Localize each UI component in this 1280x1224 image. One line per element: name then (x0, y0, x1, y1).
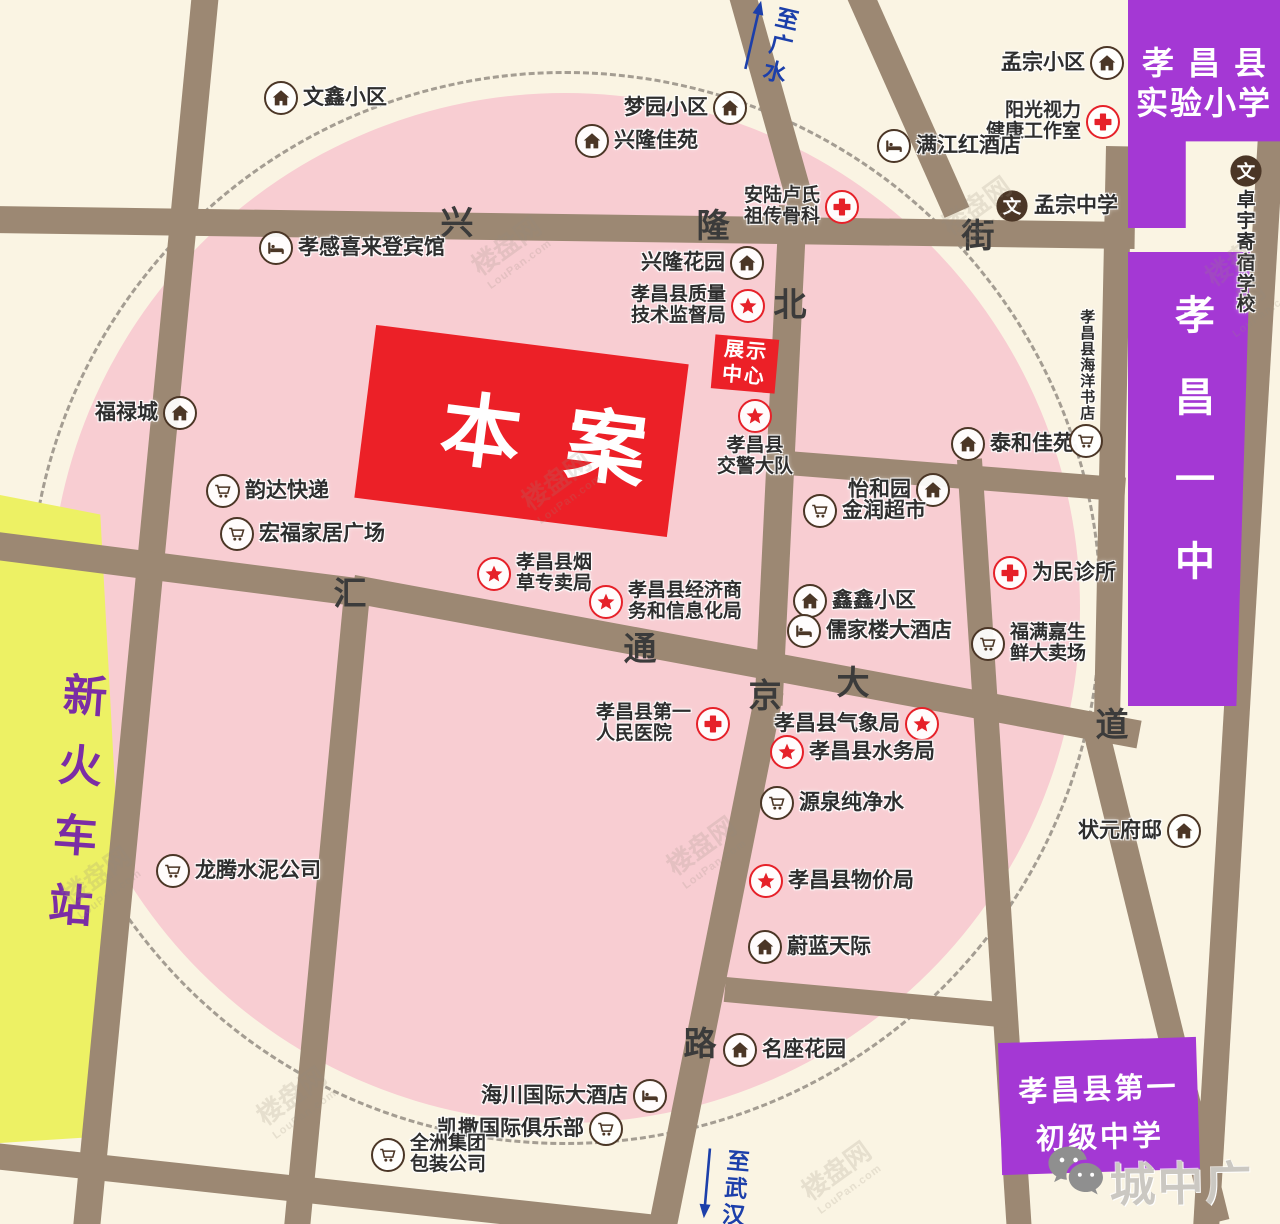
poi-label: 孝昌县水务局 (809, 740, 935, 763)
poi-zhuoyu-boarding-school: 文卓宇 寄宿学校 (1229, 154, 1263, 316)
direction-label: 至武汉 (714, 1147, 755, 1224)
poi-label: 安陆卢氏 祖传骨科 (744, 186, 820, 228)
cart-icon (156, 854, 190, 888)
poi-label: 福禄城 (95, 401, 158, 424)
road-label-beijing-road: 北 (774, 278, 807, 326)
cart-icon (589, 1112, 623, 1146)
poi-label: 龙腾水泥公司 (195, 859, 321, 882)
poi-taihe-jiayuan: 泰和佳苑 (951, 427, 1074, 461)
house-icon (951, 427, 985, 461)
poi-label: 鑫鑫小区 (832, 589, 916, 612)
poi-water-affairs-bureau: 孝昌县水务局 (770, 735, 935, 769)
poi-label: 孝昌县质量 技术监督局 (631, 285, 726, 327)
poi-jinrun-supermarket: 金润超市 (803, 494, 926, 528)
poi-label: 梦园小区 (624, 96, 708, 119)
poi-wenxin-community: 文鑫小区 (264, 81, 387, 115)
house-icon (793, 584, 827, 618)
poi-label: 孝昌县第一 人民医院 (596, 703, 691, 745)
poi-label: 孝感喜来登宾馆 (298, 236, 445, 259)
star-icon (589, 585, 623, 619)
poi-haiyang-bookstore: 孝昌县海洋书店 (1069, 309, 1103, 458)
poi-label: 全洲集团 包装公司 (410, 1134, 486, 1176)
poi-label: 孝昌县气象局 (774, 712, 900, 735)
poi-manjianghong-hotel: 满江红酒店 (877, 129, 1021, 163)
brand-watermark-label: 城中广场 (1109, 1147, 1280, 1224)
cart-icon (220, 517, 254, 551)
poi-label: 孝昌县物价局 (788, 869, 914, 892)
poi-label: 孝昌县 交警大队 (717, 436, 793, 478)
poi-label: 宏福家居广场 (259, 522, 385, 545)
svg-text:文: 文 (1237, 161, 1256, 182)
house-icon (575, 124, 609, 158)
road-label-xinglong-street: 兴 (441, 196, 474, 244)
block-xiaochang-no1-high-school: 孝昌一中 (1128, 252, 1254, 706)
arrow-down-icon (697, 1146, 717, 1224)
exhibition-center-line2: 中心 (721, 362, 767, 391)
direction-to-wuhan: 至武汉 (697, 1146, 755, 1224)
poi-label: 儒家楼大酒店 (826, 619, 952, 642)
wechat-icon (1046, 1144, 1110, 1200)
poi-label: 蔚蓝天际 (787, 935, 871, 958)
star-icon (770, 735, 804, 769)
cart-icon (1069, 424, 1103, 458)
poi-yuanquan-pure-water: 源泉纯净水 (760, 786, 904, 820)
road-label-huitong-avenue: 汇 (334, 567, 367, 615)
experimental-primary-line2: 实验小学 (1128, 78, 1280, 124)
poi-xiaogan-xilaideng-hotel: 孝感喜来登宾馆 (259, 231, 445, 265)
poi-weilan-tianji: 蔚蓝天际 (748, 930, 871, 964)
poi-fulucheng: 福禄城 (95, 396, 197, 430)
cart-icon (803, 494, 837, 528)
house-icon (713, 91, 747, 125)
bed-icon (259, 231, 293, 265)
poi-label: 兴隆佳苑 (614, 129, 698, 152)
house-icon (1167, 814, 1201, 848)
cart-icon (760, 786, 794, 820)
xiaochang-no1-high-school-label: 孝昌一中 (1162, 294, 1220, 622)
poi-weimin-clinic: 为民诊所 (993, 556, 1116, 590)
poi-label: 孟宗中学 (1034, 194, 1118, 217)
road-label-xinglong-street: 隆 (697, 199, 730, 247)
watermark-subtext: LouPan.com (815, 1162, 885, 1218)
poi-label: 文鑫小区 (303, 86, 387, 109)
poi-no1-peoples-hospital: 孝昌县第一 人民医院 (596, 703, 730, 745)
bed-icon (787, 614, 821, 648)
poi-label: 孝昌县烟 草专卖局 (516, 553, 592, 595)
poi-label: 孝昌县经济商 务和信息化局 (628, 581, 742, 623)
svg-text:文: 文 (1003, 196, 1022, 217)
cart-icon (971, 627, 1005, 661)
poi-label: 泰和佳苑 (990, 432, 1074, 455)
poi-haichuan-intl-hotel: 海川国际大酒店 (481, 1079, 667, 1113)
poi-economy-information-bureau: 孝昌县经济商 务和信息化局 (589, 581, 742, 623)
watermark: 楼盘网LouPan.com (793, 1132, 885, 1217)
poi-zhuangyuan-mansion: 状元府邸 (1078, 814, 1201, 848)
junior-middle-line1: 孝昌县第一 (999, 1063, 1198, 1111)
map-canvas: 新火车站 孝昌县 实验小学 孝昌一中 孝昌县第一 初级中学 本案 展示 中心 城… (0, 0, 1280, 1224)
house-icon (163, 396, 197, 430)
poi-hongfu-home-plaza: 宏福家居广场 (220, 517, 385, 551)
poi-xinglong-garden: 兴隆花园 (641, 246, 764, 280)
poi-label: 孝昌县海洋书店 (1078, 309, 1095, 421)
house-icon (1090, 46, 1124, 80)
poi-label: 金润超市 (842, 499, 926, 522)
cross-icon (696, 707, 730, 741)
road-label-xinglong-street: 街 (962, 209, 995, 257)
poi-mengzong-middle-school: 文孟宗中学 (995, 189, 1118, 223)
poi-label: 为民诊所 (1032, 561, 1116, 584)
poi-quality-supervision-bureau: 孝昌县质量 技术监督局 (631, 285, 765, 327)
road-label-huitong-avenue: 大 (837, 656, 870, 704)
house-icon (748, 930, 782, 964)
poi-label: 福满嘉生 鲜大卖场 (1010, 623, 1086, 665)
house-icon (723, 1033, 757, 1067)
poi-label: 韵达快递 (245, 479, 329, 502)
poi-mingzuo-garden: 名座花园 (723, 1033, 846, 1067)
poi-yunda-express: 韵达快递 (206, 474, 329, 508)
cross-icon (1086, 105, 1120, 139)
poi-mengzong-community: 孟宗小区 (1001, 46, 1124, 80)
poi-fumanjia-fresh-market: 福满嘉生 鲜大卖场 (971, 623, 1086, 665)
poi-traffic-police-brigade: 孝昌县 交警大队 (717, 399, 793, 478)
wen-icon: 文 (1229, 154, 1263, 188)
poi-label: 满江红酒店 (916, 134, 1021, 157)
poi-tobacco-monopoly-bureau: 孝昌县烟 草专卖局 (477, 553, 592, 595)
poi-label: 状元府邸 (1078, 819, 1162, 842)
poi-label: 孟宗小区 (1001, 51, 1085, 74)
star-icon (731, 289, 765, 323)
house-icon (730, 246, 764, 280)
bed-icon (633, 1079, 667, 1113)
road-label-huitong-avenue: 通 (624, 622, 657, 670)
poi-label: 卓宇 寄宿学校 (1229, 191, 1263, 316)
poi-price-bureau: 孝昌县物价局 (749, 864, 914, 898)
cross-icon (993, 556, 1027, 590)
poi-label: 名座花园 (762, 1038, 846, 1061)
bed-icon (877, 129, 911, 163)
poi-label: 兴隆花园 (641, 251, 725, 274)
poi-label: 源泉纯净水 (799, 791, 904, 814)
project-site-label: 本案 (389, 358, 699, 510)
cart-icon (206, 474, 240, 508)
exhibition-center-block: 展示 中心 (711, 334, 779, 393)
poi-anlu-lushi-bonesetting: 安陆卢氏 祖传骨科 (744, 186, 859, 228)
road-label-beijing-road: 路 (684, 1017, 717, 1065)
exhibition-center-line1: 展示 (723, 337, 769, 366)
star-icon (738, 399, 772, 433)
poi-longteng-cement: 龙腾水泥公司 (156, 854, 321, 888)
poi-mengyuan-community: 梦园小区 (624, 91, 747, 125)
watermark-text: 楼盘网 (793, 1132, 878, 1208)
poi-xinglong-jiayuan: 兴隆佳苑 (575, 124, 698, 158)
star-icon (749, 864, 783, 898)
poi-label: 海川国际大酒店 (481, 1084, 628, 1107)
road-label-huitong-avenue: 道 (1096, 698, 1129, 746)
star-icon (477, 557, 511, 591)
cross-icon (825, 190, 859, 224)
cart-icon (371, 1138, 405, 1172)
poi-xinxin-community: 鑫鑫小区 (793, 584, 916, 618)
poi-rujialou-hotel: 儒家楼大酒店 (787, 614, 952, 648)
house-icon (264, 81, 298, 115)
wen-icon: 文 (995, 189, 1029, 223)
poi-quanzhou-packaging: 全洲集团 包装公司 (371, 1134, 486, 1176)
